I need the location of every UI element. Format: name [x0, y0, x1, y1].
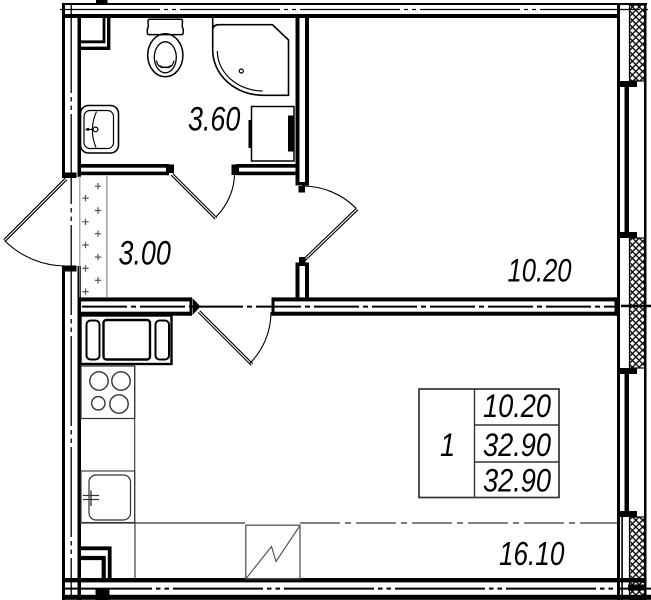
svg-text:3.60: 3.60	[188, 99, 240, 138]
svg-text:10.20: 10.20	[508, 254, 572, 289]
svg-text:3.00: 3.00	[119, 233, 171, 272]
svg-text:10.20: 10.20	[483, 389, 551, 425]
svg-text:32.90: 32.90	[483, 463, 551, 499]
svg-text:16.10: 16.10	[499, 536, 565, 573]
svg-text:32.90: 32.90	[483, 428, 551, 464]
svg-text:1: 1	[440, 428, 455, 464]
